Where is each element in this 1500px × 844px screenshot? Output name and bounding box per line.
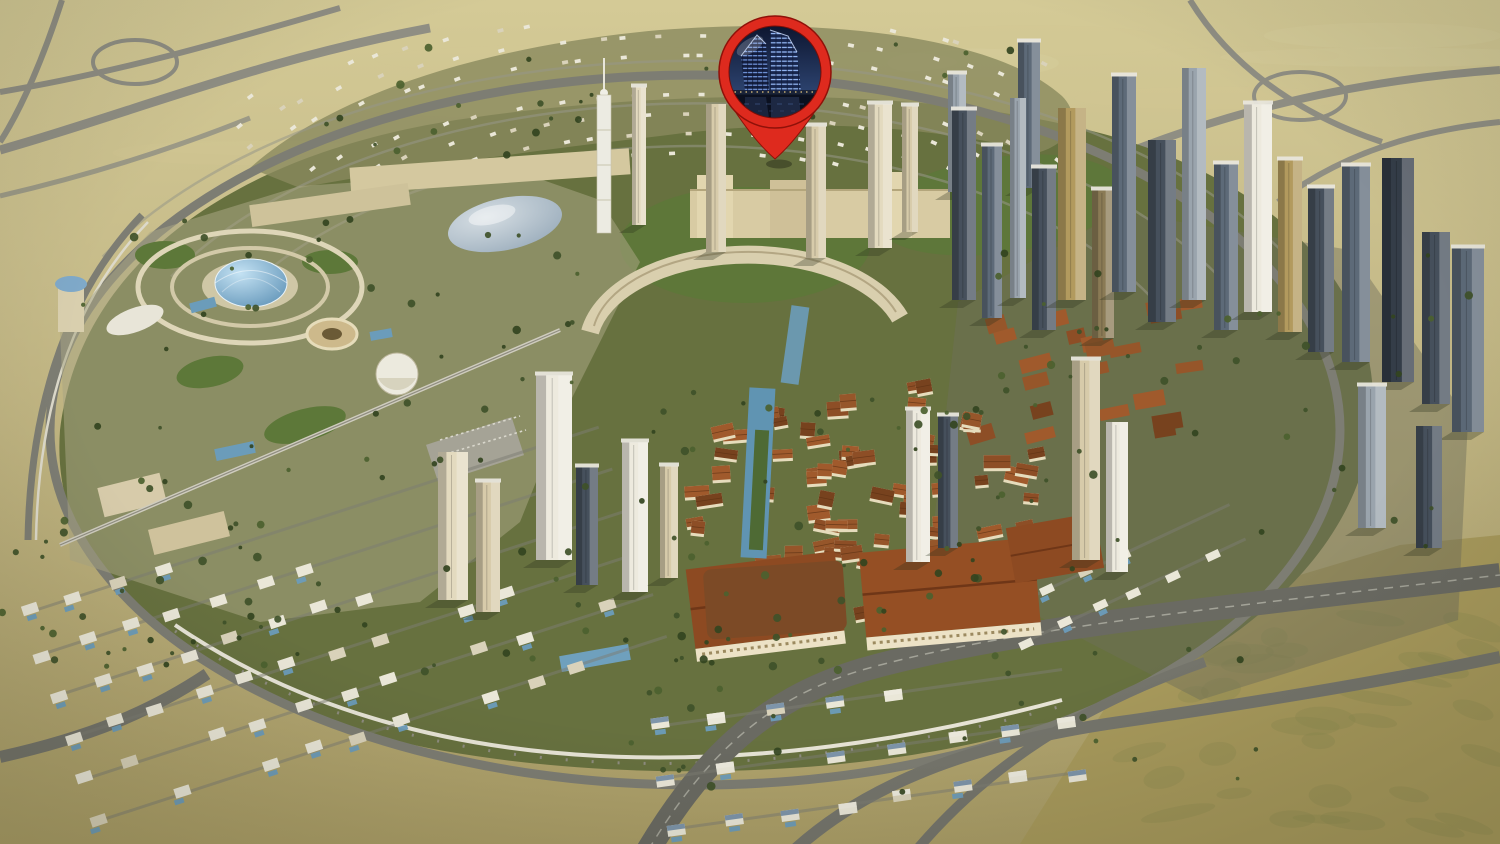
- aerial-render: [0, 0, 1500, 844]
